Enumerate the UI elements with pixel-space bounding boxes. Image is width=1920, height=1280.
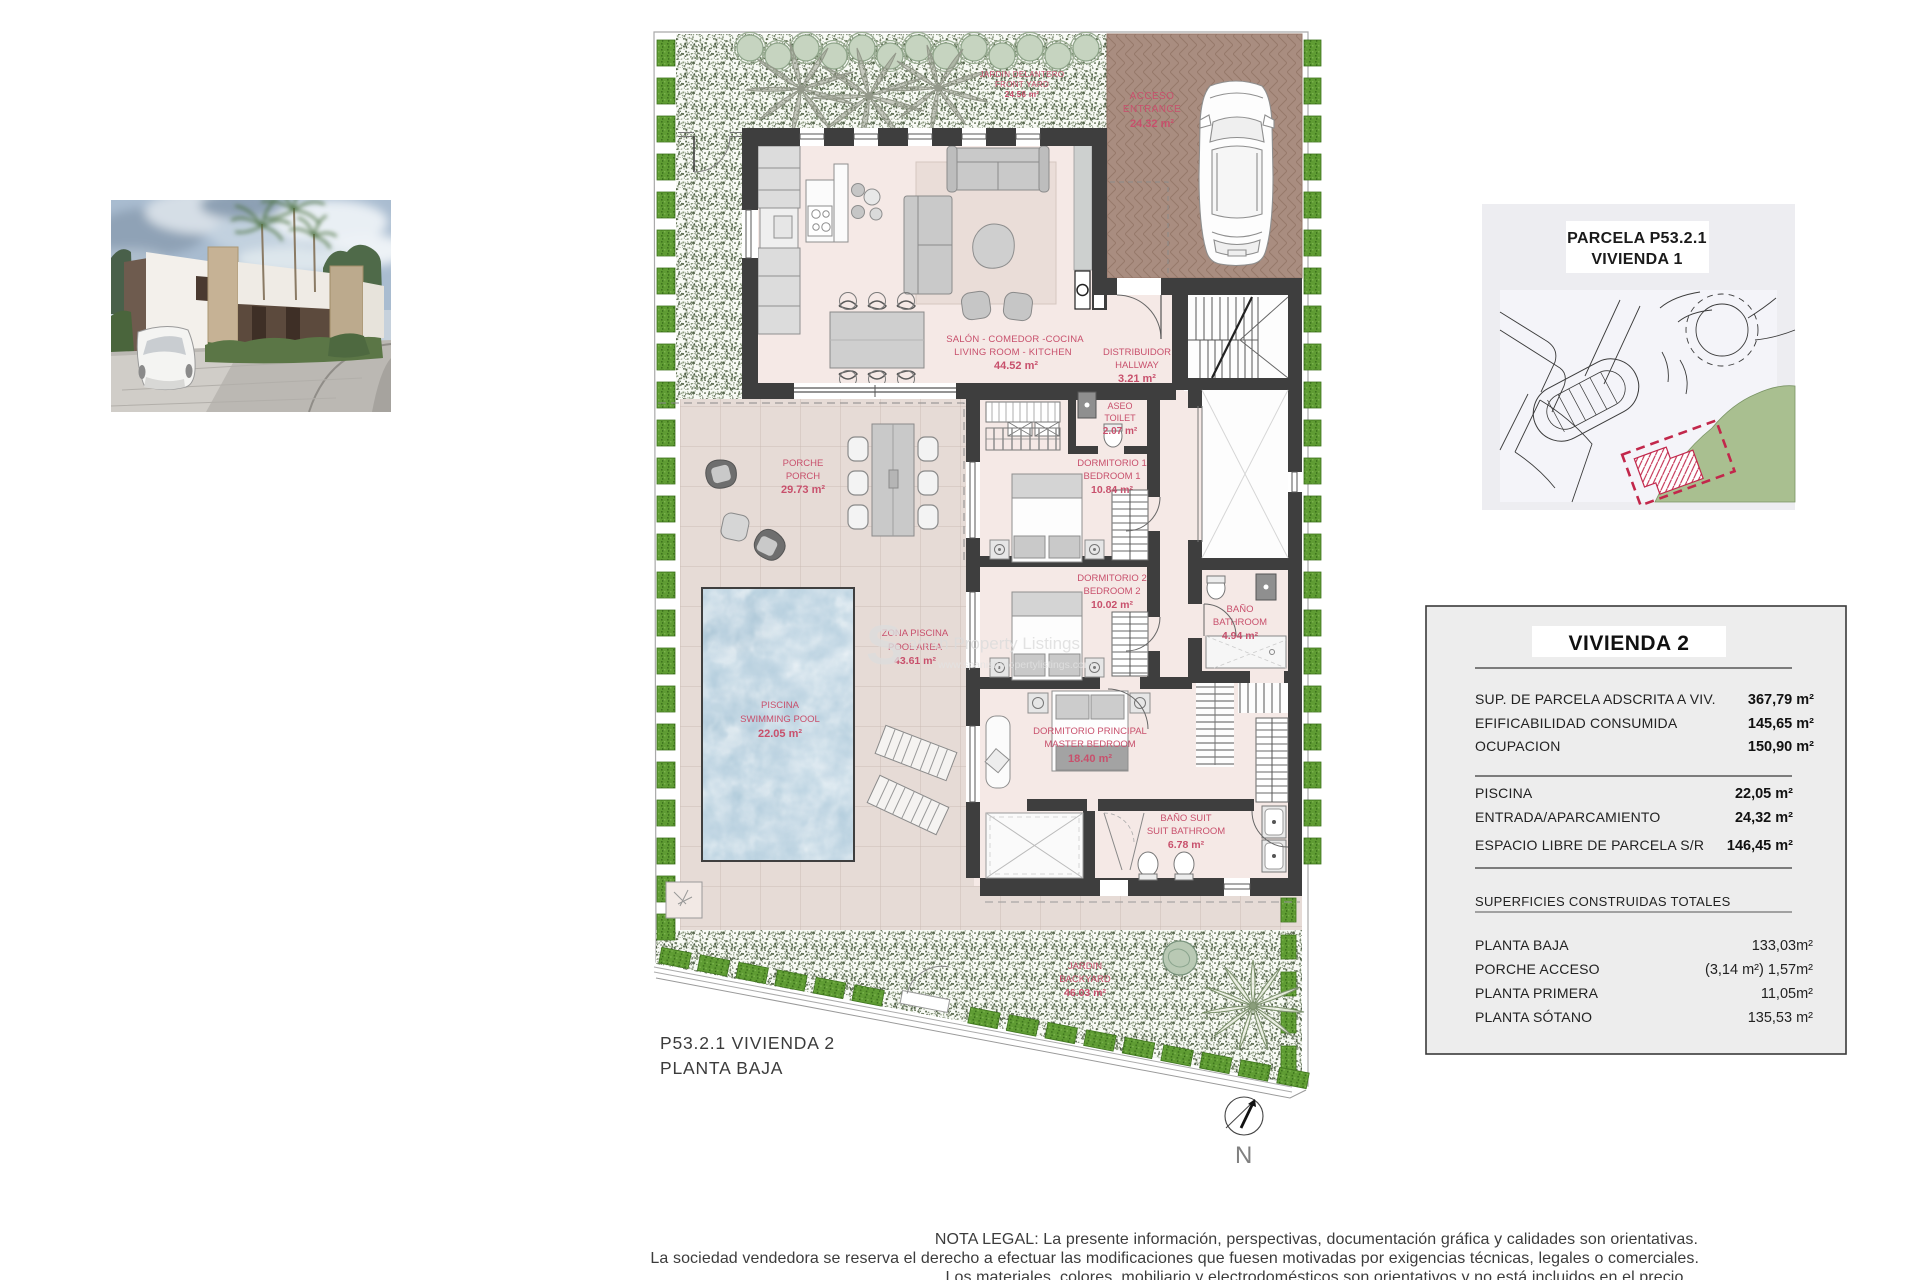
svg-text:22.05 m²: 22.05 m²	[758, 728, 802, 740]
svg-text:10.84 m²: 10.84 m²	[1091, 484, 1134, 496]
svg-text:PLANTA BAJA: PLANTA BAJA	[1475, 937, 1569, 953]
svg-text:24.32 m²: 24.32 m²	[1130, 118, 1174, 130]
svg-text:www.spanishpropertylistings.co: www.spanishpropertylistings.com	[937, 659, 1093, 671]
svg-text:BAÑO: BAÑO	[1227, 604, 1254, 615]
svg-text:18.40 m²: 18.40 m²	[1068, 753, 1112, 765]
svg-text:VIVIENDA 1: VIVIENDA 1	[1591, 251, 1682, 268]
svg-text:367,79 m²: 367,79 m²	[1748, 692, 1814, 708]
svg-text:ESPACIO LIBRE DE PARCELA S/R: ESPACIO LIBRE DE PARCELA S/R	[1475, 837, 1704, 853]
svg-text:PORCH: PORCH	[786, 471, 820, 482]
svg-text:DORMITORIO PRINCIPAL: DORMITORIO PRINCIPAL	[1033, 726, 1147, 737]
svg-text:Los materiales, colores, mobil: Los materiales, colores, mobiliario y el…	[945, 1269, 1688, 1280]
svg-text:6.78 m²: 6.78 m²	[1168, 839, 1205, 851]
svg-text:BACKYARD: BACKYARD	[1059, 974, 1111, 985]
svg-text:EFIFICABILIDAD CONSUMIDA: EFIFICABILIDAD CONSUMIDA	[1475, 715, 1678, 731]
svg-text:SUPERFICIES CONSTRUIDAS TOTALE: SUPERFICIES CONSTRUIDAS TOTALES	[1475, 894, 1731, 909]
svg-text:LIVING ROOM - KITCHEN: LIVING ROOM - KITCHEN	[954, 347, 1072, 358]
svg-text:La sociedad vendedora se reser: La sociedad vendedora se reserva el dere…	[650, 1250, 1699, 1267]
svg-text:(3,14 m²) 1,57m²: (3,14 m²) 1,57m²	[1705, 962, 1813, 978]
svg-text:P53.2.1 VIVIENDA 2: P53.2.1 VIVIENDA 2	[660, 1033, 835, 1053]
svg-text:29.73 m²: 29.73 m²	[781, 484, 825, 496]
svg-text:VIVIENDA 2: VIVIENDA 2	[1569, 632, 1690, 655]
svg-text:SUIT BATHROOM: SUIT BATHROOM	[1147, 826, 1225, 837]
svg-text:FRONT YARD: FRONT YARD	[995, 80, 1049, 89]
svg-text:HALLWAY: HALLWAY	[1115, 360, 1159, 371]
svg-text:133,03m²: 133,03m²	[1752, 938, 1813, 954]
svg-text:44.52 m²: 44.52 m²	[994, 360, 1038, 372]
svg-text:OCUPACION: OCUPACION	[1475, 738, 1561, 754]
svg-text:N: N	[1235, 1142, 1252, 1169]
svg-text:NOTA LEGAL: La presente inform: NOTA LEGAL: La presente información, per…	[935, 1231, 1698, 1248]
svg-text:150,90 m²: 150,90 m²	[1748, 739, 1814, 755]
svg-text:ENTRADA/APARCAMIENTO: ENTRADA/APARCAMIENTO	[1475, 809, 1661, 825]
svg-text:S: S	[866, 613, 903, 676]
svg-text:DISTRIBUIDOR: DISTRIBUIDOR	[1103, 347, 1171, 358]
svg-text:46.03 m²: 46.03 m²	[1064, 987, 1107, 999]
svg-text:SALÓN - COMEDOR -COCINA: SALÓN - COMEDOR -COCINA	[946, 334, 1084, 345]
svg-text:PLANTA BAJA: PLANTA BAJA	[660, 1058, 783, 1078]
svg-text:JARDIN DELANTERO: JARDIN DELANTERO	[980, 70, 1065, 79]
svg-text:135,53 m²: 135,53 m²	[1748, 1010, 1813, 1026]
svg-text:PORCHE ACCESO: PORCHE ACCESO	[1475, 961, 1600, 977]
svg-text:ACCESO: ACCESO	[1130, 91, 1175, 102]
svg-text:145,65 m²: 145,65 m²	[1748, 716, 1814, 732]
svg-text:BAÑO SUIT: BAÑO SUIT	[1160, 813, 1211, 824]
svg-text:DORMITORIO 2: DORMITORIO 2	[1077, 573, 1147, 584]
svg-text:PISCINA: PISCINA	[1475, 785, 1533, 801]
svg-text:24.56 m²: 24.56 m²	[1005, 90, 1039, 99]
svg-text:TOILET: TOILET	[1104, 413, 1136, 423]
svg-text:PISCINA: PISCINA	[761, 700, 800, 711]
svg-text:146,45 m²: 146,45 m²	[1727, 838, 1793, 854]
svg-text:BEDROOM 1: BEDROOM 1	[1083, 471, 1140, 482]
svg-text:SWIMMING POOL: SWIMMING POOL	[740, 714, 820, 725]
svg-text:anish Property Listings: anish Property Listings	[908, 634, 1080, 653]
svg-text:24,32 m²: 24,32 m²	[1735, 810, 1793, 826]
svg-text:ASEO: ASEO	[1107, 401, 1132, 411]
svg-text:2.07 m²: 2.07 m²	[1103, 426, 1138, 437]
svg-text:22,05 m²: 22,05 m²	[1735, 786, 1793, 802]
svg-text:MASTER BEDROOM: MASTER BEDROOM	[1044, 739, 1135, 750]
svg-text:BATHROOM: BATHROOM	[1213, 617, 1267, 628]
svg-text:JARDIN: JARDIN	[1068, 961, 1102, 972]
svg-text:4.94 m²: 4.94 m²	[1222, 630, 1259, 642]
svg-text:SUP. DE PARCELA ADSCRITA A VIV: SUP. DE PARCELA ADSCRITA A VIV.	[1475, 691, 1716, 707]
svg-text:11,05m²: 11,05m²	[1761, 986, 1813, 1002]
svg-text:BEDROOM 2: BEDROOM 2	[1083, 586, 1140, 597]
svg-text:PLANTA SÓTANO: PLANTA SÓTANO	[1475, 1009, 1592, 1025]
svg-text:PLANTA PRIMERA: PLANTA PRIMERA	[1475, 985, 1599, 1001]
svg-text:ENTRANCE: ENTRANCE	[1123, 104, 1181, 115]
svg-text:PARCELA P53.2.1: PARCELA P53.2.1	[1567, 230, 1707, 247]
svg-text:DORMITORIO 1: DORMITORIO 1	[1077, 458, 1147, 469]
svg-text:PORCHE: PORCHE	[783, 458, 824, 469]
svg-text:10.02 m²: 10.02 m²	[1091, 599, 1134, 611]
